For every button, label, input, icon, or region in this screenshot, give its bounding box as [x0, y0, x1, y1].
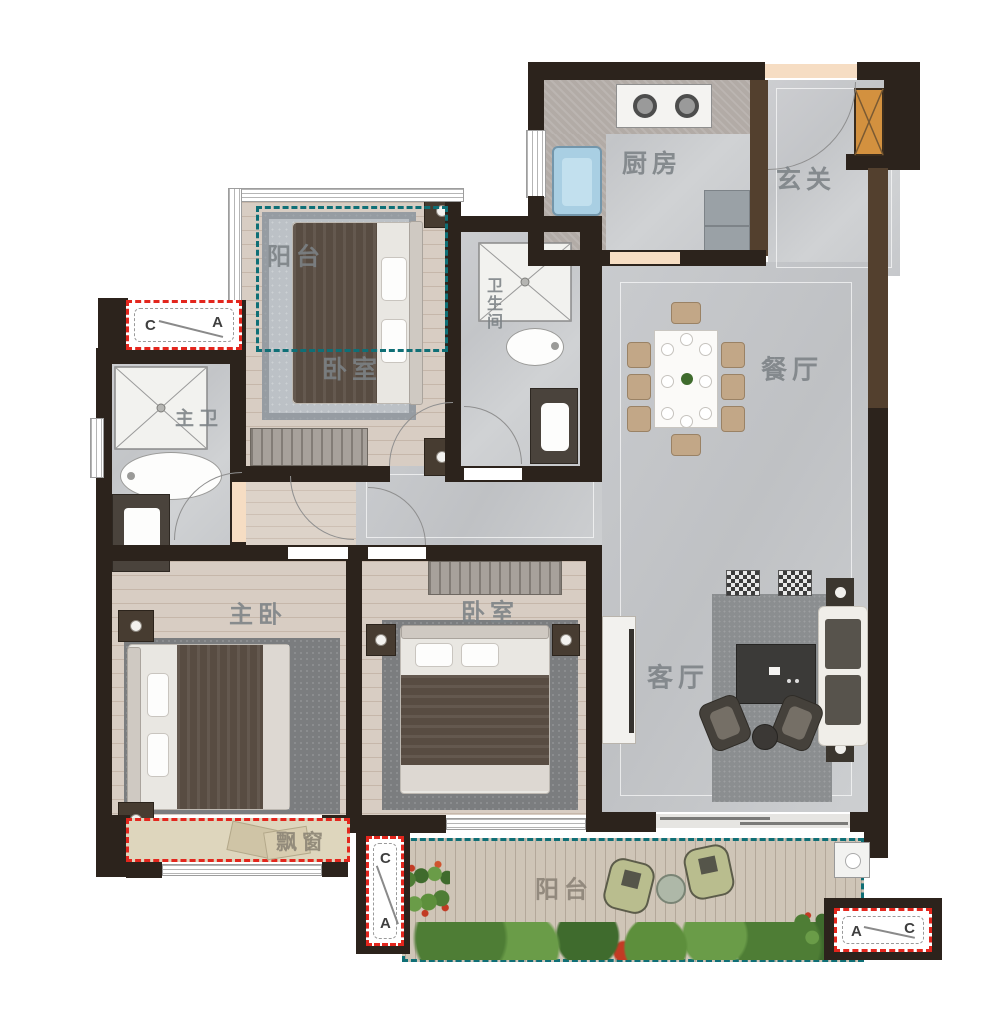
bed-pillow [147, 673, 169, 717]
marker-letter: A [212, 315, 223, 330]
bedroom-second-door-opening [368, 547, 426, 559]
wall-kitchen-top [528, 62, 765, 80]
armchair-seat [780, 705, 813, 742]
sliding-door-leaf [740, 822, 848, 825]
dining-chair [627, 406, 651, 432]
wall-master-bath-top [96, 348, 246, 364]
stove-icon [616, 84, 712, 128]
dining-chair [627, 342, 651, 368]
fridge-line [705, 225, 751, 227]
bed-blanket [401, 675, 549, 767]
label-master-bath: 主卫 [175, 404, 223, 431]
shaft-icon [854, 88, 884, 156]
master-door-opening [288, 547, 348, 559]
tv-wall [602, 616, 636, 744]
ottoman [752, 724, 778, 750]
plate-icon [661, 407, 674, 420]
balcony-plants-bottom [406, 922, 860, 960]
wall-bathroom-right [580, 216, 602, 482]
dining-chair [721, 406, 745, 432]
stove-burner-icon [675, 94, 699, 118]
wall-right-upper [868, 168, 888, 408]
section-marker-bottom-right: A C [834, 908, 932, 952]
dot [795, 679, 799, 683]
balcony-upper-window-top [228, 188, 464, 202]
wall-right-lower [868, 408, 888, 832]
bed-blanket [177, 645, 263, 809]
side-table [726, 570, 760, 596]
sofa-cushion [825, 675, 861, 725]
sofa-cushion [825, 619, 861, 669]
marker-letter: C [145, 318, 156, 333]
dining-chair [671, 434, 701, 456]
lamp-icon [835, 587, 846, 598]
dining-chair [627, 374, 651, 400]
dining-chair [671, 302, 701, 324]
balcony-upper-outline [256, 206, 448, 352]
sliding-door-leaf [660, 817, 770, 820]
dining-chair [721, 342, 745, 368]
bathroom-door-opening [464, 468, 522, 480]
corner-table [826, 578, 854, 606]
sink-basin [845, 853, 861, 869]
kitchen-window [526, 130, 546, 198]
dining-chair [721, 374, 745, 400]
wardrobe [428, 561, 562, 595]
nightstand [552, 624, 580, 656]
wall-kitchen-left-upper [528, 80, 544, 132]
wall-bay-left [126, 862, 162, 878]
lamp-icon [375, 634, 387, 646]
plate-icon [699, 375, 712, 388]
plate-icon [699, 343, 712, 356]
master-bed [128, 644, 290, 810]
floor-plan: C A C A A C 厨房 玄关 餐厅 客厅 阳台 卧室 卫生间 主卫 主卧 … [0, 0, 1000, 1036]
wall-bedroom-divider [346, 561, 362, 817]
lamp-icon [560, 634, 572, 646]
label-bedroom-second: 卧室 [461, 593, 519, 628]
balcony-sink-icon [834, 842, 870, 878]
wall-master-bottom-left [96, 815, 130, 877]
coffee-table [736, 644, 816, 704]
wall-shaft-side [884, 80, 902, 156]
sink-basin [562, 158, 592, 206]
bed-headboard [127, 647, 141, 807]
marker-letter: C [380, 851, 391, 866]
bedroom-second-bed [400, 626, 550, 794]
label-dining: 餐厅 [761, 350, 823, 387]
label-balcony-lower: 阳台 [535, 870, 593, 905]
balcony-upper-window-left [228, 188, 242, 306]
entry-door-opening [765, 64, 857, 78]
marker-letter: A [851, 924, 862, 939]
kitchen-door-opening [610, 252, 680, 264]
bathroom-vanity [530, 388, 578, 464]
wall-marker-stub [98, 298, 128, 352]
wardrobe [250, 428, 368, 466]
wall-bedroom-second-right [586, 561, 602, 817]
balcony-table [656, 874, 686, 904]
remote-icon [769, 667, 780, 675]
kitchen-sink-icon [552, 146, 602, 216]
nightstand [118, 610, 154, 642]
label-bedroom-upper: 卧室 [322, 350, 382, 386]
label-bay-window: 飘窗 [276, 826, 328, 856]
marker-letter: C [904, 921, 915, 936]
bed-pillow [147, 733, 169, 777]
dot [787, 679, 791, 683]
balcony-sliding-door [656, 814, 852, 828]
wall-living-bottom-left [586, 812, 656, 832]
lamp-icon [130, 620, 142, 632]
stove-burner-icon [633, 94, 657, 118]
plate-icon [699, 407, 712, 420]
side-table [778, 570, 812, 596]
tv-icon [629, 629, 634, 733]
label-kitchen: 厨房 [622, 144, 682, 180]
bedroom-second-window [446, 818, 586, 830]
label-living: 客厅 [647, 658, 709, 695]
section-marker-bottom-center: C A [366, 836, 404, 946]
sofa [818, 606, 868, 746]
nightstand [366, 624, 396, 656]
bed-pillow [461, 643, 499, 667]
chair-cushion [621, 870, 641, 890]
bed-pillow [415, 643, 453, 667]
label-master-bedroom: 主卧 [229, 595, 287, 630]
master-bath-window [90, 418, 104, 478]
label-bathroom: 卫生间 [480, 277, 504, 331]
wall-master-left [96, 561, 112, 817]
wall-kitchen-foyer-divider [750, 80, 768, 256]
dining-set [627, 302, 745, 456]
tub-drain [127, 472, 135, 480]
marker-letter: A [380, 916, 391, 931]
toilet-icon [506, 328, 564, 366]
section-marker-upper-left: C A [126, 300, 242, 350]
label-foyer: 玄关 [776, 160, 836, 196]
plate-icon [661, 343, 674, 356]
toilet-flush [551, 342, 559, 350]
armchair-seat [708, 705, 741, 742]
bay-window-glass [162, 864, 322, 876]
bed-sheet-fold [263, 645, 289, 809]
plate-icon [661, 375, 674, 388]
chair-cushion [698, 855, 718, 874]
plate-icon [680, 333, 693, 346]
dining-table [654, 330, 718, 428]
sink-basin [541, 403, 569, 451]
label-balcony-upper: 阳台 [267, 237, 325, 272]
plate-icon [680, 415, 693, 428]
bed-sheet-fold [401, 765, 549, 791]
wall-bathroom-top [445, 216, 602, 232]
table-plant-icon [681, 373, 693, 385]
